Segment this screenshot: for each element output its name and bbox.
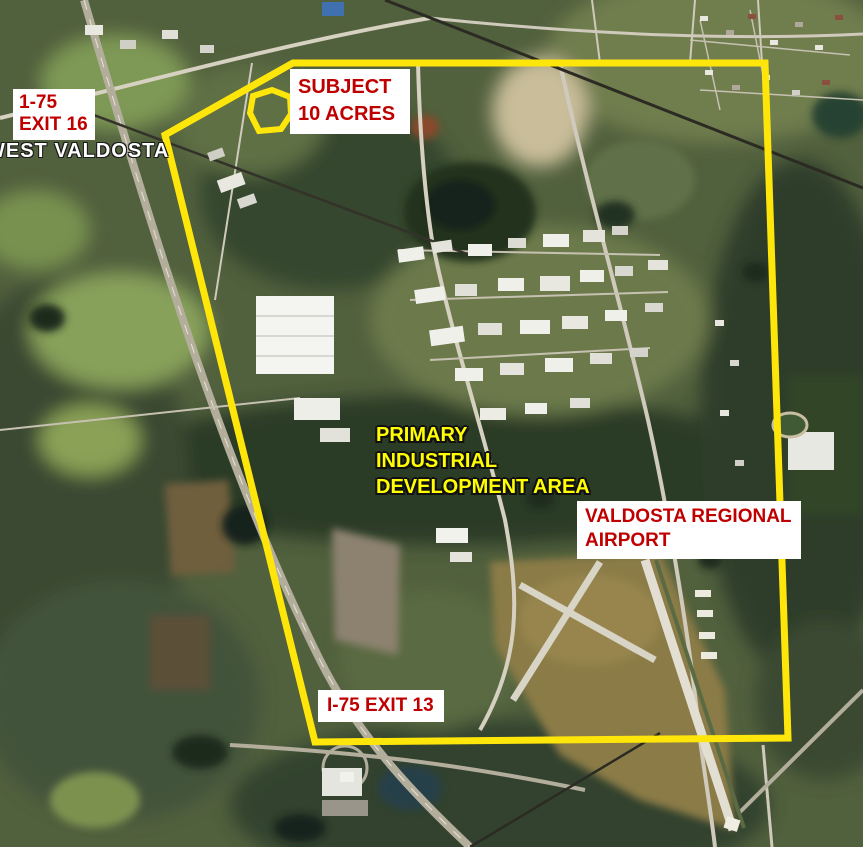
primary-area-line3: DEVELOPMENT AREA xyxy=(376,474,590,500)
subject-line1: SUBJECT xyxy=(298,74,410,101)
primary-area-line1: PRIMARY xyxy=(376,422,590,448)
exit16-callout: 1-75 EXIT 16 xyxy=(13,89,95,140)
primary-area-line2: INDUSTRIAL xyxy=(376,448,590,474)
airport-callout: VALDOSTA REGIONAL AIRPORT xyxy=(577,501,801,559)
subject-line2: 10 ACRES xyxy=(298,101,410,128)
airport-line2: AIRPORT xyxy=(585,529,792,553)
primary-industrial-area-label: PRIMARY INDUSTRIAL DEVELOPMENT AREA xyxy=(376,422,590,500)
exit16-line2: EXIT 16 xyxy=(19,114,95,136)
subject-callout: SUBJECT 10 ACRES xyxy=(290,69,410,134)
west-valdosta-label: WEST VALDOSTA xyxy=(0,140,169,163)
exit13-callout: I-75 EXIT 13 xyxy=(318,690,444,722)
satellite-map: 1-75 EXIT 16 WEST VALDOSTA SUBJECT 10 AC… xyxy=(0,0,863,847)
airport-line1: VALDOSTA REGIONAL xyxy=(585,505,792,529)
exit16-line1: 1-75 xyxy=(19,92,95,114)
